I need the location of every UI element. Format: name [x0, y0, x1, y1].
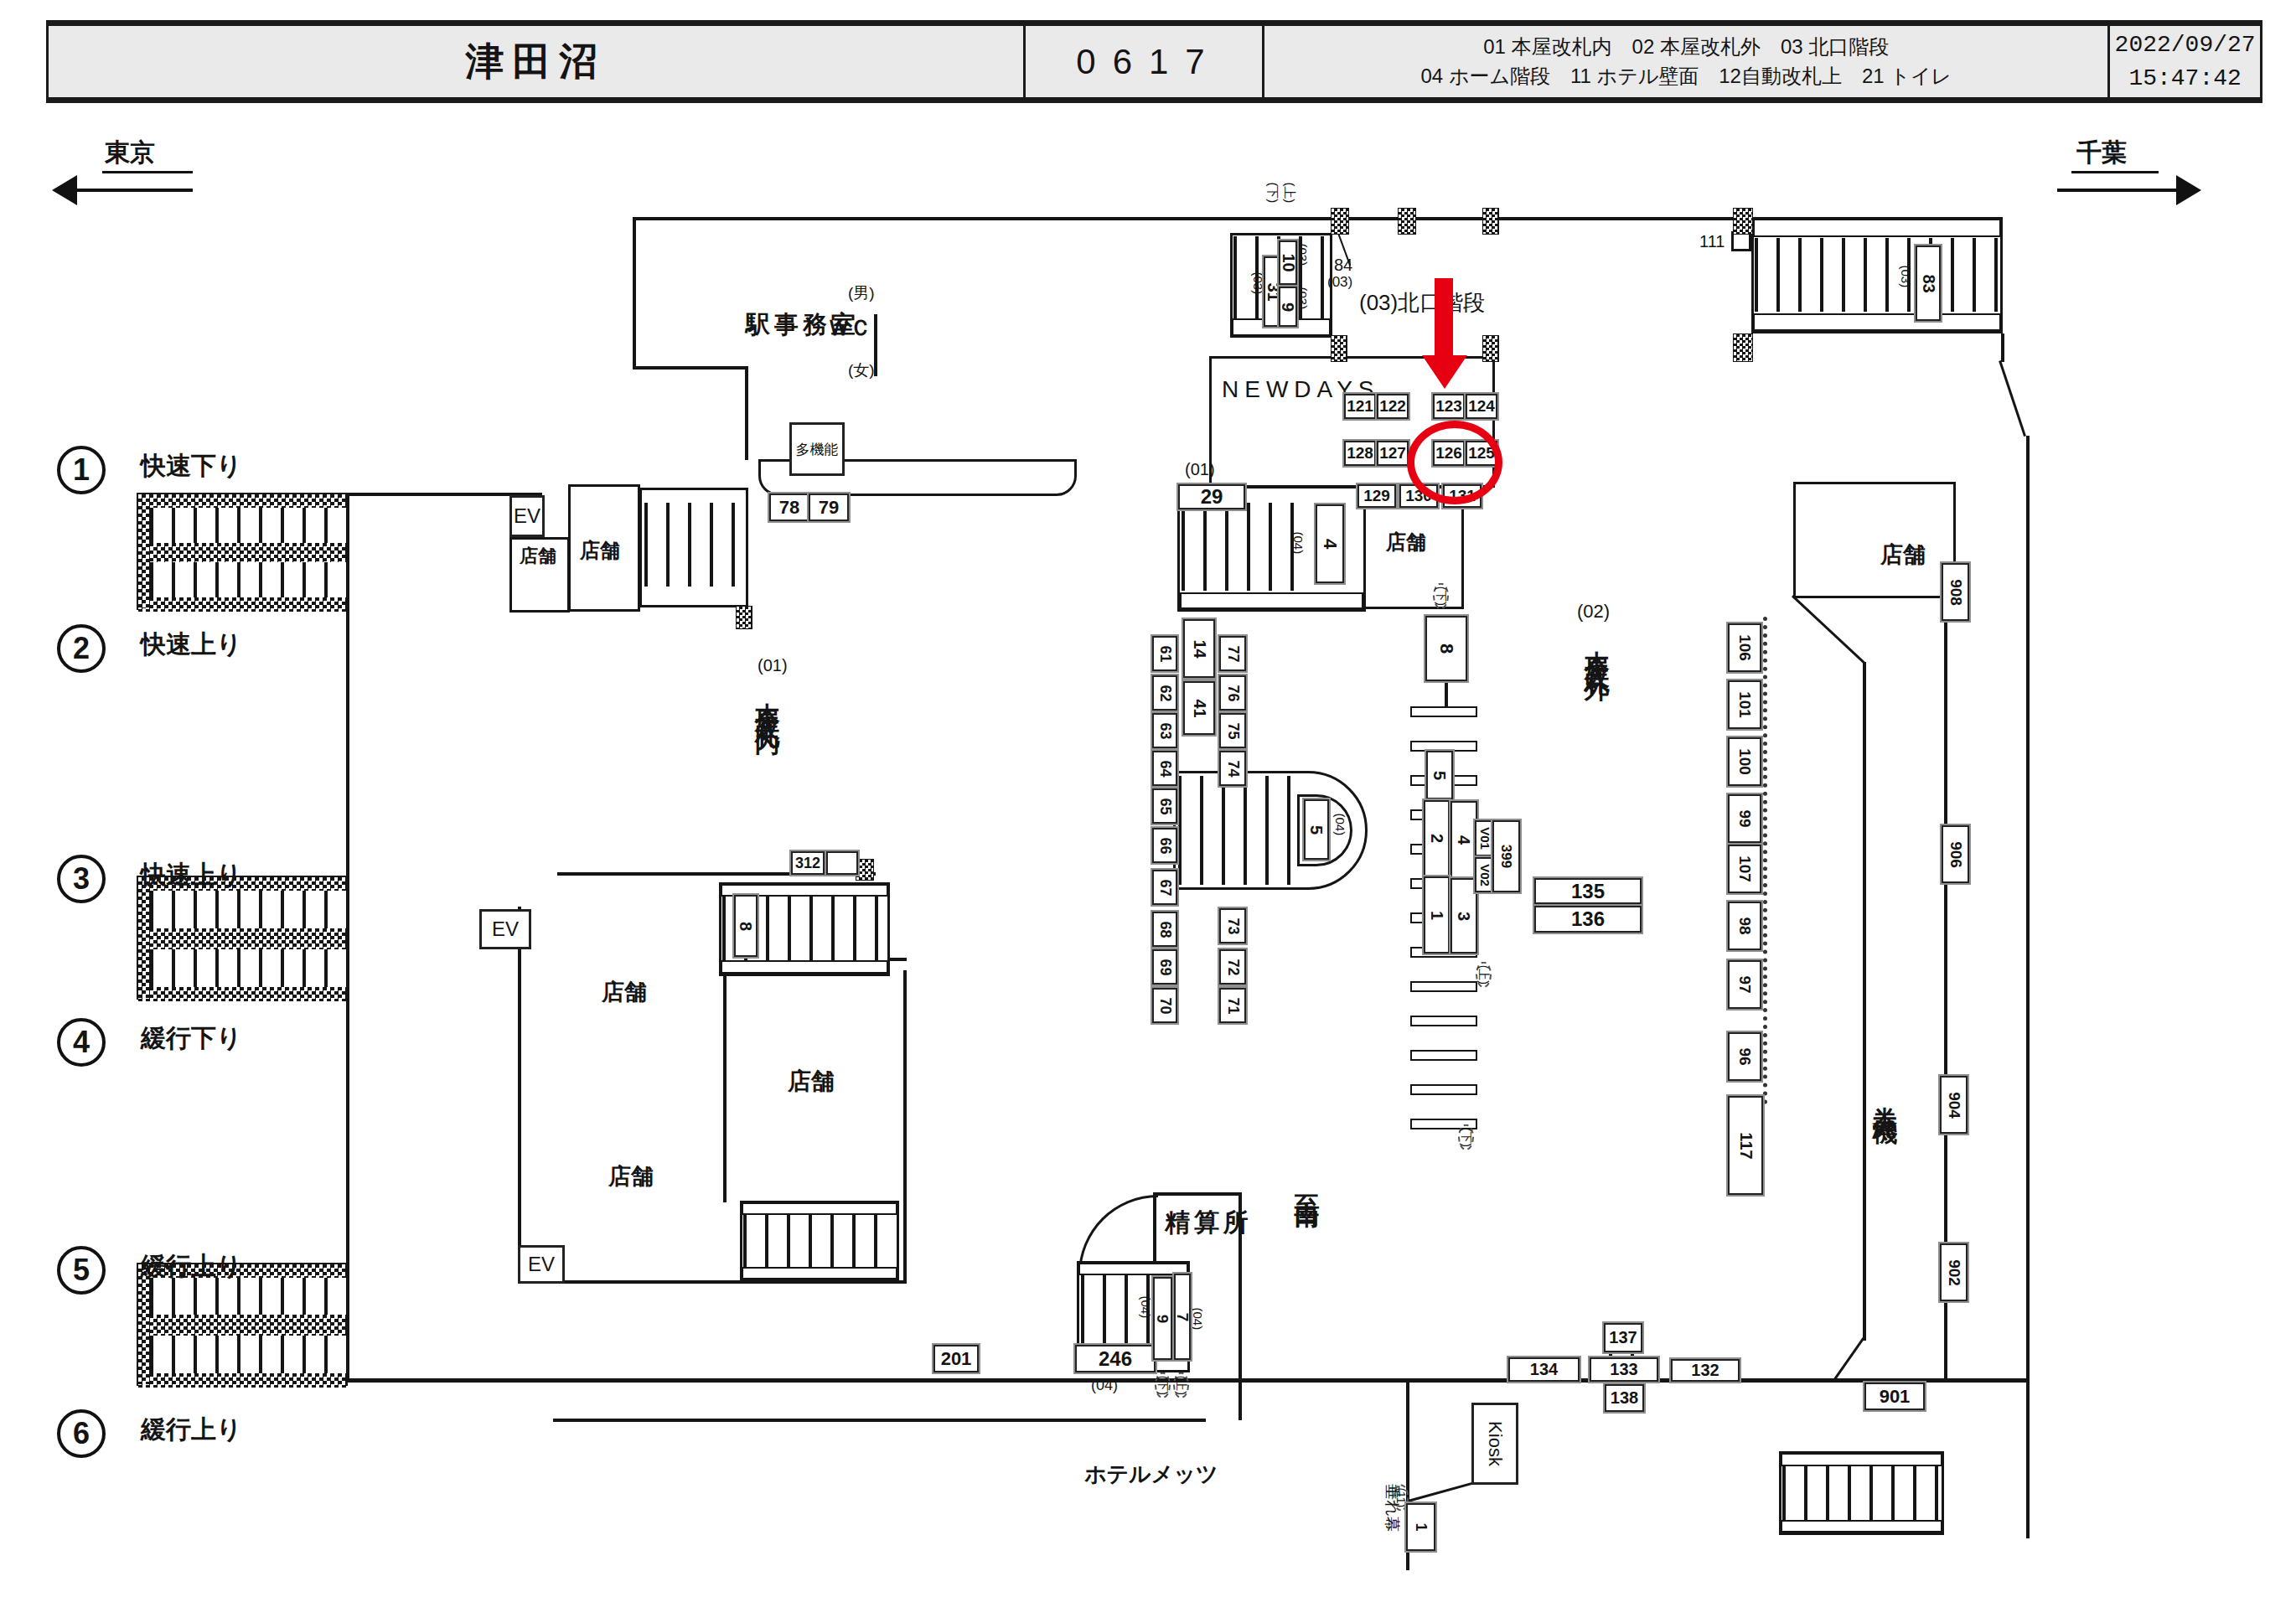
ad-box-number: 96 [1735, 1047, 1754, 1065]
ad-box-number: EV [528, 1253, 555, 1276]
ad-box-number: 5 [1307, 824, 1326, 834]
platform-number-text: 2 [73, 631, 90, 666]
ad-box-EV: EV [518, 1245, 565, 1284]
platform-name: 緩行下り [141, 1025, 242, 1052]
map-label: 店舗 [520, 546, 556, 566]
platform-number-text: 4 [73, 1025, 90, 1060]
ad-box-number: 71 [1224, 997, 1242, 1014]
map-label: (下) [1458, 1124, 1474, 1150]
map-label: (下) [1267, 182, 1280, 203]
station-ad-map-viewer: { "header": { "title": "津田沼", "code": "0… [0, 0, 2296, 1623]
ad-box-63: 63 [1152, 713, 1177, 748]
ad-box-number: 246 [1099, 1347, 1132, 1371]
ad-box-75: 75 [1219, 713, 1246, 748]
ad-box-number: 9 [1279, 302, 1298, 311]
platform-number-text: 5 [73, 1253, 90, 1288]
time-text: 15:47:42 [2128, 62, 2241, 95]
ad-box-129: 129 [1357, 484, 1396, 508]
ad-box-number: 129 [1363, 487, 1390, 505]
map-label: (04) [1091, 1377, 1118, 1393]
platform-name: 快速下り [141, 452, 242, 479]
map-label: (03) [1899, 266, 1912, 288]
ad-box-78: 78 [769, 494, 809, 521]
map-label: (01) [758, 657, 788, 675]
ad-box-99: 99 [1728, 794, 1761, 843]
ad-box-number: 132 [1691, 1361, 1719, 1380]
ad-box-138: 138 [1605, 1384, 1644, 1412]
ad-box-41: 41 [1183, 681, 1215, 735]
tokyo-arrow-shaft [74, 189, 193, 192]
platform-name: 緩行上り [141, 1253, 242, 1279]
ad-box-number: 99 [1735, 809, 1754, 827]
ad-box-312: 312 [791, 851, 825, 875]
ad-box-number: Kiosk [1484, 1421, 1506, 1466]
ad-box-number: 123 [1435, 397, 1462, 416]
ad-box-number: 70 [1156, 997, 1174, 1014]
ad-box-117: 117 [1728, 1096, 1763, 1195]
ad-box-number: 29 [1201, 485, 1223, 509]
map-label: 店舗 [580, 540, 620, 561]
platform-number-3: 3 [57, 855, 106, 903]
ad-box-number: 77 [1224, 645, 1242, 662]
ad-box-Kiosk: Kiosk [1471, 1403, 1518, 1485]
map-label: (下) [1433, 583, 1449, 609]
ad-box-number: 908 [1947, 579, 1965, 606]
ad-box-97: 97 [1728, 960, 1761, 1009]
ad-box-107: 107 [1728, 845, 1761, 893]
ad-box-132: 132 [1671, 1359, 1740, 1382]
map-label: 店舗 [788, 1069, 835, 1093]
ad-box-number: 107 [1735, 855, 1754, 882]
map-label: (02) [1577, 602, 1610, 621]
ad-box-number: 124 [1468, 397, 1495, 416]
ad-box-number: 68 [1156, 921, 1174, 938]
ad-box-64: 64 [1152, 751, 1177, 786]
map-label: (女) [848, 362, 875, 379]
ad-box-399: 399 [1492, 820, 1520, 892]
map-label: 券売機 [1872, 1086, 1899, 1106]
ad-box-61: 61 [1152, 636, 1177, 671]
ad-box-73: 73 [1219, 908, 1246, 943]
map-label: 本屋改札内 [754, 682, 781, 716]
map-label: 店舗 [1880, 543, 1926, 566]
ad-box-number: 312 [795, 855, 820, 872]
ad-box-5: 5 [1304, 799, 1329, 860]
ad-box-number: 1 [1427, 910, 1446, 919]
ad-box-4: 4 [1451, 801, 1477, 878]
ad-box-number: 64 [1156, 760, 1174, 777]
ad-box-133: 133 [1590, 1357, 1658, 1382]
map-label: (03)北口階段 [1359, 292, 1485, 314]
ad-box-70: 70 [1152, 988, 1177, 1023]
platform-number-text: 3 [73, 861, 90, 897]
ad-box-901: 901 [1864, 1383, 1925, 1410]
ad-box-number: 904 [1945, 1092, 1963, 1119]
map-label: 店舗 [1386, 531, 1426, 552]
ad-box-62: 62 [1152, 675, 1177, 711]
map-label: (下) [1155, 1372, 1171, 1398]
platform-number-6: 6 [57, 1409, 106, 1458]
tokyo-arrow-icon [52, 175, 77, 205]
ad-box-5: 5 [1426, 751, 1453, 799]
ad-box-number: 多機能 [796, 440, 839, 459]
ad-box-122: 122 [1377, 394, 1409, 419]
ad-box-71: 71 [1219, 988, 1246, 1023]
ad-box-68: 68 [1152, 912, 1177, 947]
ad-box-number: V02 [1478, 864, 1492, 886]
map-label: ホテルメッツ [1084, 1463, 1218, 1486]
ad-box-74: 74 [1219, 751, 1246, 786]
map-label: (03) [1327, 275, 1352, 290]
ad-box-67: 67 [1152, 870, 1177, 905]
ad-box-number: 14 [1190, 639, 1209, 658]
ad-box-多機能: 多機能 [789, 422, 845, 476]
map-label: (04) [1291, 532, 1305, 555]
ad-box-8: 8 [734, 895, 758, 957]
ad-box-96: 96 [1728, 1032, 1761, 1081]
highlight-arrow-head-icon [1422, 355, 1467, 389]
platform-name: 快速上り [141, 631, 242, 658]
ad-box-number: 117 [1735, 1132, 1755, 1159]
platform-block-1-2 [137, 493, 348, 610]
platform-block-3-4 [137, 876, 348, 1000]
ad-box-number: 134 [1530, 1360, 1558, 1379]
shop-box-east [1793, 482, 1956, 598]
legend-line-2: 04 ホーム階段 11 ホテル壁面 12自動改札上 21 トイレ [1421, 62, 1952, 91]
ad-box-number: 138 [1611, 1388, 1638, 1408]
map-label: 店舗 [608, 1165, 654, 1188]
ad-box-128: 128 [1344, 441, 1376, 466]
ad-box-902: 902 [1940, 1243, 1968, 1301]
ad-box-number: 127 [1379, 444, 1406, 463]
ad-box-123: 123 [1433, 394, 1465, 419]
ad-box-number: 128 [1347, 444, 1373, 463]
ad-box-906: 906 [1942, 825, 1969, 883]
map-label: (04) [1191, 1308, 1204, 1331]
platform-name: 快速上り [141, 861, 242, 888]
ad-box-69: 69 [1152, 949, 1177, 985]
ad-box-77: 77 [1219, 636, 1246, 671]
ad-box-number: 4 [1455, 835, 1474, 844]
map-label: 111 [1699, 233, 1725, 251]
tokyo-underline [102, 171, 193, 173]
chiba-arrow-icon [2176, 175, 2201, 205]
station-title: 津田沼 [49, 26, 1026, 97]
platform-number-4: 4 [57, 1018, 106, 1067]
ad-box-134: 134 [1508, 1357, 1580, 1382]
map-label: (03) [1295, 287, 1309, 310]
ad-box-number: 76 [1224, 685, 1242, 701]
ad-box-number: 902 [1945, 1259, 1963, 1286]
direction-chiba-label: 千葉 [2076, 139, 2127, 166]
ad-box-124: 124 [1466, 394, 1497, 419]
ad-box-EV: EV [509, 495, 545, 537]
ad-box-number: 63 [1156, 722, 1174, 739]
ad-box-72: 72 [1219, 949, 1246, 985]
ad-box-201: 201 [933, 1345, 979, 1372]
ad-box-number: 75 [1224, 722, 1242, 739]
map-label: 本屋改札外 [1584, 630, 1611, 664]
platform-number-1: 1 [57, 446, 106, 494]
highlight-arrow-icon [1435, 278, 1453, 357]
ad-box-number: 62 [1156, 685, 1174, 701]
legend: 01 本屋改札内 02 本屋改札外 03 北口階段 04 ホーム階段 11 ホテ… [1264, 26, 2110, 97]
date-text: 2022/09/27 [2115, 28, 2256, 61]
ad-box-8: 8 [1425, 616, 1467, 681]
ad-box-246: 246 [1075, 1345, 1156, 1372]
ad-box-98: 98 [1728, 902, 1761, 950]
dotted-boundary [1763, 617, 1767, 1104]
map-label: (男) [848, 285, 875, 302]
ad-box-number: 3 [1455, 911, 1474, 920]
ad-box-106: 106 [1728, 623, 1761, 672]
ad-box-76: 76 [1219, 675, 1246, 711]
map-label: 店舗 [602, 980, 647, 1004]
ad-box-2: 2 [1424, 800, 1450, 876]
station-code: 0617 [1026, 26, 1265, 97]
ad-box-number: 137 [1609, 1328, 1637, 1347]
ad-box-7: 7 [1174, 1274, 1191, 1360]
ad-box-number: 83 [1919, 274, 1938, 292]
ad-box-number: 65 [1156, 798, 1174, 814]
map-label: (上) [1476, 962, 1492, 988]
ad-box-137: 137 [1604, 1323, 1642, 1352]
ad-box-number: 72 [1224, 959, 1242, 975]
chiba-arrow-shaft [2057, 189, 2176, 192]
platform-number-text: 6 [73, 1416, 90, 1451]
ad-box-number: 101 [1735, 691, 1754, 718]
ad-box-904: 904 [1940, 1076, 1968, 1134]
ad-box-121: 121 [1344, 394, 1376, 419]
ad-box-3: 3 [1451, 878, 1477, 954]
map-label: ＷＣ [828, 317, 871, 339]
ad-box-100: 100 [1728, 737, 1761, 786]
ad-box-number: 5 [1430, 770, 1450, 779]
ad-box-number: 2 [1427, 834, 1446, 843]
ad-box-1: 1 [1424, 876, 1450, 954]
direction-tokyo-label: 東京 [105, 139, 155, 166]
ad-box-number: 74 [1224, 760, 1242, 777]
ad-box-66: 66 [1152, 828, 1177, 863]
ad-box-29: 29 [1178, 484, 1245, 509]
platform-number-5: 5 [57, 1246, 106, 1295]
ad-box-blank [826, 851, 858, 875]
ad-box-number: 10 [1279, 253, 1298, 271]
ad-box-4: 4 [1316, 504, 1344, 583]
map-label: 至南口 [1294, 1175, 1321, 1195]
ad-box-number: 135 [1571, 880, 1605, 903]
ad-box-number: 73 [1224, 917, 1242, 934]
ad-box-number: 399 [1498, 845, 1515, 868]
datetime: 2022/09/27 15:47:42 [2110, 26, 2260, 97]
ad-box-number: V01 [1478, 827, 1492, 850]
ad-box-number: 9 [1153, 1314, 1171, 1323]
ad-box-number: 97 [1735, 975, 1754, 993]
ad-box-65: 65 [1152, 788, 1177, 824]
ad-box-EV: EV [479, 909, 531, 949]
ad-box-number: 100 [1735, 748, 1754, 775]
ad-box-127: 127 [1377, 441, 1409, 466]
map-label: (03) [1295, 244, 1309, 266]
map-label: (01) [1185, 461, 1215, 478]
ad-box-number: 78 [779, 497, 799, 519]
ad-box-number: 1 [1412, 1522, 1430, 1531]
ad-box-number: 122 [1379, 397, 1406, 416]
ad-box-83: 83 [1916, 246, 1941, 321]
map-label: (04) [1333, 814, 1347, 836]
map-label: (上) [1173, 1372, 1189, 1398]
ad-box-9: 9 [1153, 1277, 1172, 1360]
ad-box-number: 79 [819, 497, 839, 519]
ad-box-number: 901 [1880, 1386, 1911, 1408]
ad-box-1: 1 [1406, 1503, 1435, 1551]
ad-box-number: 121 [1347, 397, 1373, 416]
ad-box-number: EV [492, 917, 519, 941]
platform-name: 緩行上り [141, 1416, 242, 1443]
ad-box-number: 201 [941, 1348, 972, 1370]
ad-box-number: EV [514, 504, 540, 528]
ad-box-number: 106 [1735, 634, 1754, 661]
chiba-underline [2071, 171, 2159, 173]
ad-box-number: 136 [1571, 907, 1605, 931]
ad-box-101: 101 [1728, 680, 1761, 729]
ad-box-number: 61 [1156, 645, 1174, 662]
highlight-circle-on-126 [1407, 421, 1502, 504]
ad-box-number: 8 [1435, 644, 1457, 654]
ad-box-number: 41 [1190, 699, 1209, 717]
ad-box-136: 136 [1534, 906, 1642, 933]
map-label: 84 [1334, 256, 1352, 274]
platform-number-text: 1 [73, 452, 90, 488]
legend-line-1: 01 本屋改札内 02 本屋改札外 03 北口階段 [1483, 33, 1889, 62]
map-label: (上) [1284, 182, 1297, 203]
ad-box-908: 908 [1942, 563, 1969, 621]
ad-box-number: 69 [1156, 959, 1174, 975]
ad-box-number: 7 [1173, 1312, 1192, 1321]
map-label: 精算所 [1165, 1209, 1253, 1236]
ad-box-9: 9 [1279, 287, 1297, 327]
platform-block-5-6 [137, 1263, 348, 1386]
ad-box-number: 66 [1156, 837, 1174, 854]
ad-box-10: 10 [1279, 240, 1297, 285]
ad-box-14: 14 [1183, 619, 1215, 678]
map-label: (04) [1139, 1296, 1152, 1319]
ad-box-number: 67 [1156, 879, 1174, 896]
ad-box-number: 8 [737, 921, 756, 930]
ad-box-number: 98 [1735, 917, 1754, 934]
ad-box-number: 906 [1947, 841, 1965, 868]
platform-number-2: 2 [57, 624, 106, 673]
ad-box-135: 135 [1534, 878, 1642, 904]
ad-box-79: 79 [809, 494, 849, 521]
header-bar: 津田沼 0617 01 本屋改札内 02 本屋改札外 03 北口階段 04 ホー… [46, 23, 2262, 100]
ad-box-number: 4 [1319, 539, 1341, 549]
ad-box-number: 133 [1610, 1360, 1637, 1379]
